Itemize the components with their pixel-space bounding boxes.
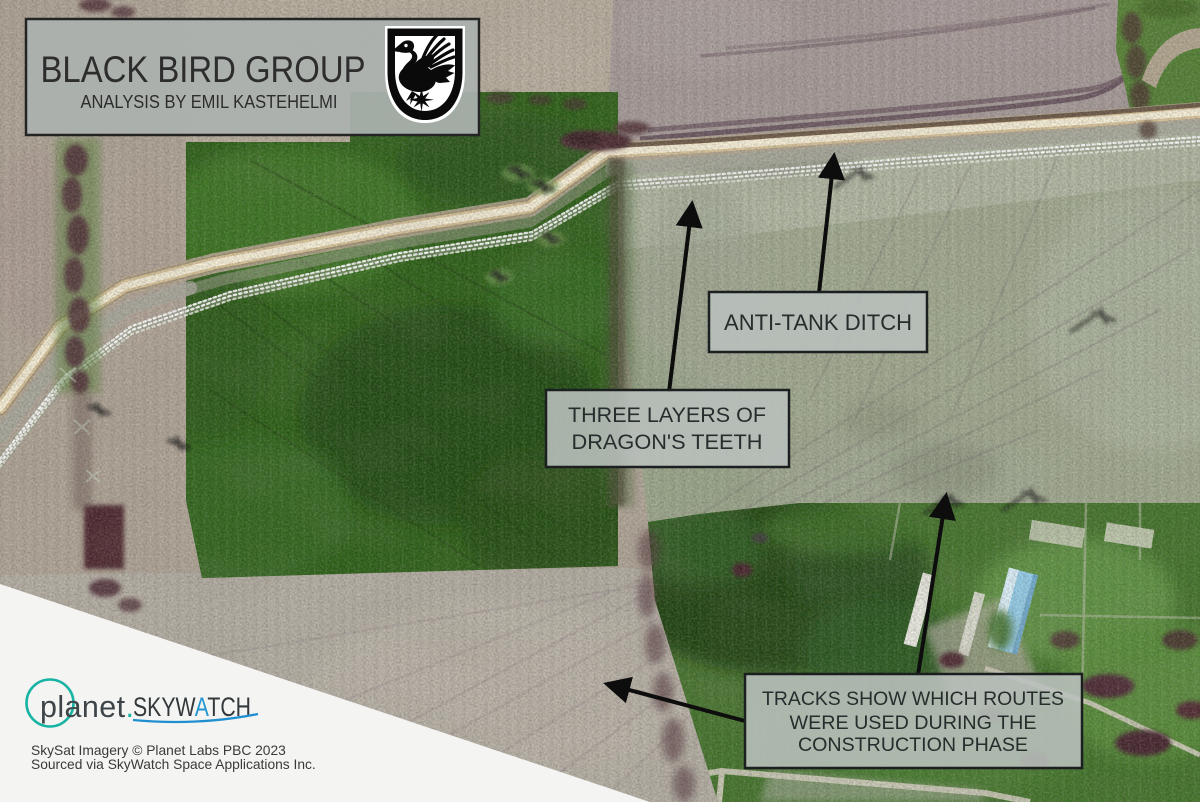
svg-text:THREE LAYERS OF: THREE LAYERS OF bbox=[568, 403, 766, 427]
svg-text:planet.: planet. bbox=[40, 690, 134, 724]
svg-text:WERE USED DURING THE: WERE USED DURING THE bbox=[790, 713, 1037, 734]
svg-text:BLACK BIRD GROUP: BLACK BIRD GROUP bbox=[41, 49, 366, 90]
svg-text:TRACKS SHOW WHICH ROUTES: TRACKS SHOW WHICH ROUTES bbox=[762, 689, 1064, 710]
svg-text:ANTI-TANK DITCH: ANTI-TANK DITCH bbox=[724, 310, 912, 335]
svg-text:DRAGON'S TEETH: DRAGON'S TEETH bbox=[572, 430, 763, 454]
svg-text:Sourced via SkyWatch Space App: Sourced via SkyWatch Space Applications … bbox=[31, 757, 316, 772]
svg-text:SkySat Imagery © Planet Labs P: SkySat Imagery © Planet Labs PBC 2023 bbox=[31, 743, 286, 758]
svg-text:ANALYSIS BY EMIL KASTEHELMI: ANALYSIS BY EMIL KASTEHELMI bbox=[81, 92, 338, 112]
svg-text:CONSTRUCTION PHASE: CONSTRUCTION PHASE bbox=[798, 735, 1028, 756]
